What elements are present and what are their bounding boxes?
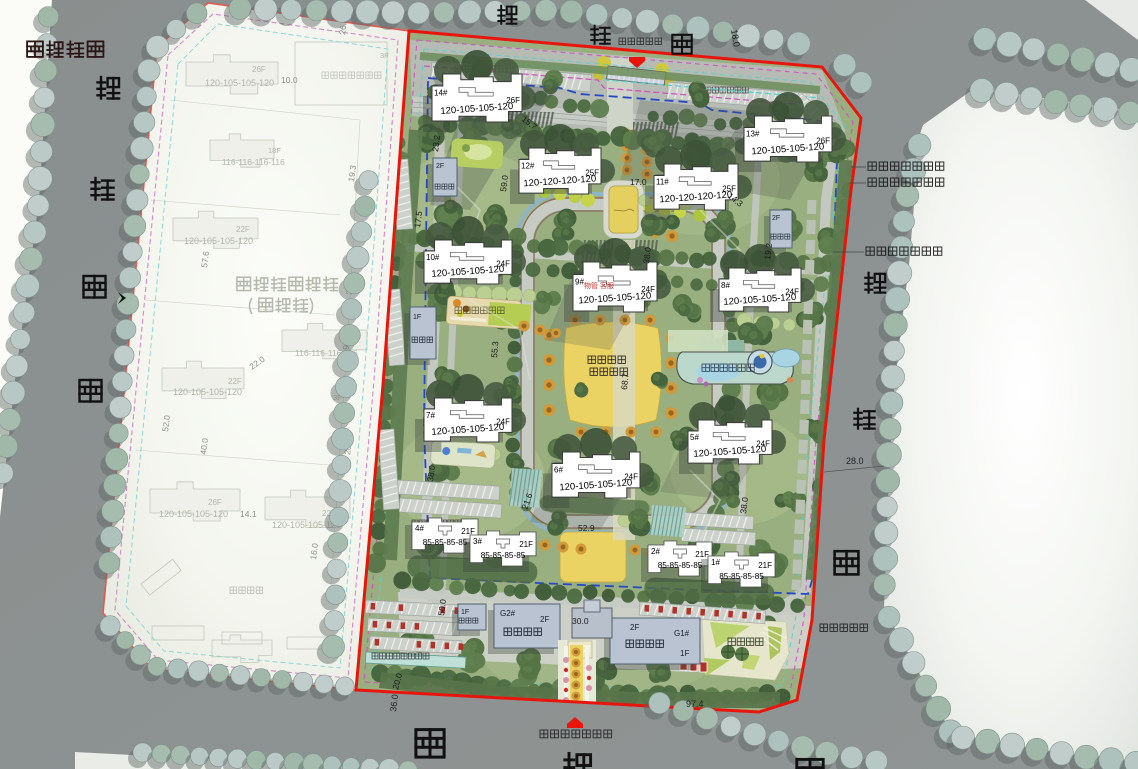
- svg-text:3F: 3F: [380, 51, 389, 60]
- svg-text:24F: 24F: [641, 285, 655, 294]
- svg-text:5#: 5#: [690, 433, 699, 442]
- svg-text:16.0: 16.0: [308, 542, 320, 560]
- svg-text:85-85-85-85: 85-85-85-85: [658, 561, 703, 570]
- svg-text:120-105-105-120: 120-105-105-120: [159, 509, 228, 519]
- svg-text:2F: 2F: [540, 615, 549, 624]
- svg-text:17.5: 17.5: [412, 210, 424, 228]
- svg-text:85-85-85-85: 85-85-85-85: [481, 551, 526, 560]
- svg-text:8#: 8#: [721, 281, 730, 290]
- svg-text:26F: 26F: [506, 96, 520, 105]
- svg-text:1F: 1F: [413, 314, 421, 321]
- svg-text:4#: 4#: [415, 524, 424, 533]
- svg-text:21F: 21F: [519, 540, 533, 549]
- svg-text:19.3: 19.3: [346, 164, 358, 182]
- svg-text:26F: 26F: [816, 137, 830, 146]
- svg-text:36.0: 36.0: [388, 694, 400, 713]
- svg-text:26F: 26F: [252, 65, 266, 74]
- svg-text:G1#: G1#: [674, 629, 690, 638]
- svg-text:50.0: 50.0: [436, 598, 448, 616]
- svg-text:18F: 18F: [268, 146, 281, 155]
- svg-text:2F: 2F: [630, 623, 639, 632]
- svg-text:7#: 7#: [426, 411, 435, 420]
- svg-text:物管 客服: 物管 客服: [584, 281, 614, 290]
- svg-text:11#: 11#: [656, 178, 669, 187]
- svg-text:120-105-105-120: 120-105-105-120: [184, 236, 253, 246]
- svg-text:21F: 21F: [695, 550, 709, 559]
- svg-text:57.6: 57.6: [199, 250, 211, 268]
- svg-text:116-116-116-116: 116-116-116-116: [222, 157, 285, 167]
- svg-text:1F: 1F: [461, 609, 469, 616]
- svg-text:22F: 22F: [228, 377, 242, 386]
- svg-text:19.2: 19.2: [762, 242, 774, 260]
- svg-text:2F: 2F: [772, 215, 780, 222]
- svg-text:17.0: 17.0: [630, 177, 647, 187]
- svg-text:38.0: 38.0: [738, 496, 750, 514]
- svg-text:13#: 13#: [746, 130, 760, 139]
- svg-text:38.0: 38.0: [641, 246, 653, 264]
- svg-text:1#: 1#: [711, 558, 720, 567]
- svg-text:24F: 24F: [785, 287, 799, 296]
- svg-text:38.0: 38.0: [425, 464, 437, 482]
- svg-text:59.0: 59.0: [498, 174, 510, 192]
- svg-text:120-105-105-120: 120-105-105-120: [205, 78, 274, 88]
- svg-text:10.0: 10.0: [281, 75, 298, 85]
- svg-text:3#: 3#: [473, 537, 482, 546]
- svg-text:21F: 21F: [758, 561, 772, 570]
- svg-text:23.2: 23.2: [430, 134, 442, 152]
- svg-text:52.9: 52.9: [578, 523, 595, 533]
- svg-text:40.0: 40.0: [198, 437, 210, 455]
- svg-text:24F: 24F: [624, 473, 638, 482]
- svg-text:30.0: 30.0: [572, 616, 589, 626]
- svg-text:120-105-105-120: 120-105-105-120: [173, 387, 242, 397]
- svg-text:26F: 26F: [208, 498, 222, 507]
- svg-text:85-85-85-85: 85-85-85-85: [423, 538, 468, 547]
- svg-text:24F: 24F: [496, 417, 510, 426]
- svg-text:24F: 24F: [496, 259, 510, 268]
- svg-text:2#: 2#: [651, 547, 660, 556]
- svg-text:24F: 24F: [756, 439, 770, 448]
- svg-text:G2#: G2#: [500, 609, 516, 618]
- svg-text:12#: 12#: [521, 162, 535, 171]
- svg-text:97.4: 97.4: [686, 699, 704, 709]
- svg-text:55.3: 55.3: [489, 341, 500, 359]
- svg-text:22F: 22F: [236, 225, 250, 234]
- svg-text:1F: 1F: [680, 649, 689, 658]
- svg-text:10#: 10#: [426, 253, 440, 262]
- svg-text:14.1: 14.1: [240, 509, 257, 519]
- svg-text:14#: 14#: [434, 89, 448, 98]
- svg-text:85-85-85-85: 85-85-85-85: [719, 572, 764, 581]
- svg-text:6#: 6#: [554, 466, 563, 475]
- svg-text:2F: 2F: [436, 163, 444, 170]
- svg-text:25F: 25F: [585, 169, 599, 178]
- svg-text:28.0: 28.0: [846, 456, 864, 466]
- svg-text:52.0: 52.0: [160, 414, 172, 432]
